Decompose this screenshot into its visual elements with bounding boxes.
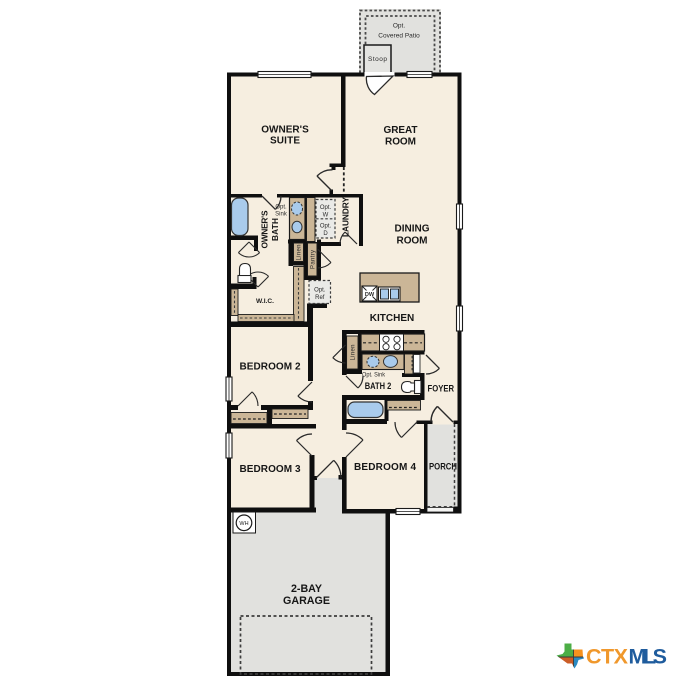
- svg-text:GREAT: GREAT: [384, 125, 418, 136]
- svg-text:LAUNDRY: LAUNDRY: [341, 197, 351, 237]
- svg-text:BEDROOM 4: BEDROOM 4: [354, 462, 416, 473]
- svg-text:Opt.: Opt.: [314, 288, 326, 294]
- svg-text:PORCH: PORCH: [429, 462, 457, 472]
- svg-text:Sink: Sink: [275, 212, 288, 218]
- svg-text:SUITE: SUITE: [270, 136, 300, 147]
- svg-text:Ref: Ref: [315, 295, 325, 301]
- svg-text:Stoop: Stoop: [368, 56, 387, 63]
- svg-text:BEDROOM 3: BEDROOM 3: [240, 464, 301, 475]
- svg-text:DINING: DINING: [395, 224, 430, 235]
- svg-text:W: W: [323, 213, 329, 219]
- svg-text:BEDROOM 2: BEDROOM 2: [240, 362, 301, 373]
- svg-text:Linen: Linen: [351, 345, 357, 361]
- svg-text:DW: DW: [365, 292, 375, 298]
- svg-text:WH: WH: [239, 521, 248, 527]
- svg-text:Covered Patio: Covered Patio: [378, 33, 420, 40]
- svg-text:2-BAY: 2-BAY: [291, 583, 322, 595]
- svg-text:ROOM: ROOM: [385, 137, 416, 148]
- svg-text:ROOM: ROOM: [397, 236, 428, 247]
- svg-text:Opt.: Opt.: [275, 205, 287, 211]
- svg-text:D: D: [323, 231, 328, 237]
- svg-text:FOYER: FOYER: [428, 384, 455, 394]
- svg-text:KITCHEN: KITCHEN: [370, 313, 415, 324]
- svg-text:CTX: CTX: [586, 645, 629, 669]
- svg-text:BATH 2: BATH 2: [365, 381, 392, 391]
- svg-text:W.I.C.: W.I.C.: [256, 298, 274, 305]
- svg-text:Pantry: Pantry: [310, 250, 316, 269]
- svg-text:MLS: MLS: [629, 645, 668, 669]
- svg-text:Linen: Linen: [297, 245, 303, 261]
- svg-text:Opt.: Opt.: [393, 23, 405, 30]
- svg-text:OWNER'S: OWNER'S: [260, 210, 270, 248]
- svg-text:GARAGE: GARAGE: [283, 595, 330, 607]
- svg-text:OWNER'S: OWNER'S: [261, 125, 309, 136]
- svg-text:Opt.: Opt.: [320, 224, 332, 230]
- svg-text:Opt. Sink: Opt. Sink: [362, 373, 386, 379]
- svg-text:Opt.: Opt.: [320, 205, 332, 211]
- svg-text:BATH: BATH: [270, 218, 280, 241]
